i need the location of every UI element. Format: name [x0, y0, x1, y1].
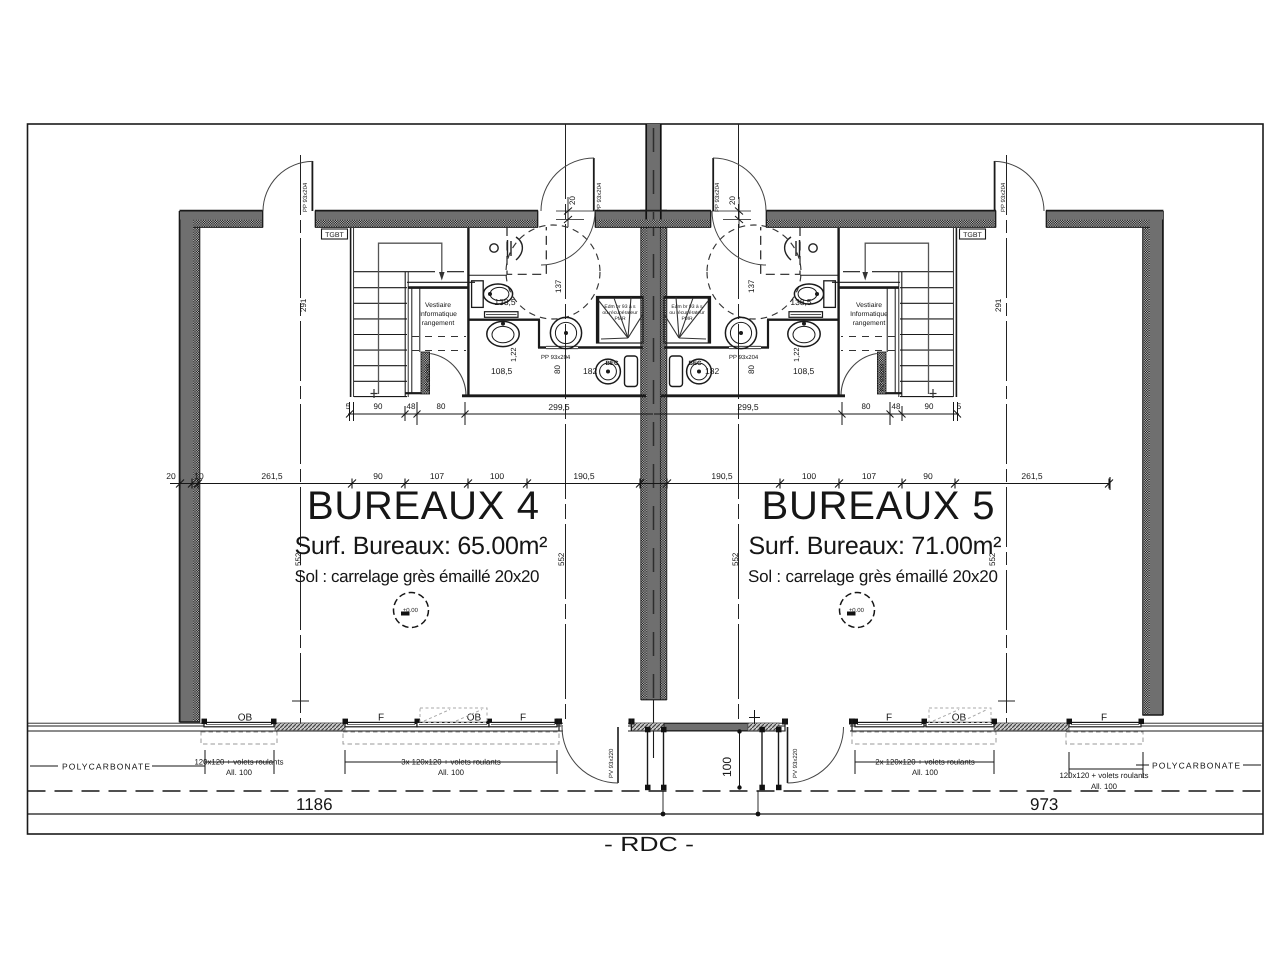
- svg-text:138,5: 138,5: [790, 297, 812, 307]
- svg-text:80: 80: [862, 402, 871, 411]
- svg-text:90: 90: [373, 471, 383, 481]
- svg-text:Sol : carrelage grès émaillé 2: Sol : carrelage grès émaillé 20x20: [295, 567, 540, 586]
- svg-text:1,22: 1,22: [509, 347, 518, 362]
- svg-text:BUREAUX 5: BUREAUX 5: [762, 484, 995, 528]
- svg-text:182: 182: [705, 366, 719, 376]
- svg-text:- RDC -: - RDC -: [604, 833, 694, 856]
- svg-text:Surf. Bureaux: 65.00m²: Surf. Bureaux: 65.00m²: [295, 532, 548, 560]
- svg-text:20: 20: [728, 196, 737, 205]
- svg-text:F: F: [1101, 713, 1107, 724]
- svg-text:107: 107: [430, 471, 444, 481]
- svg-text:OB: OB: [238, 713, 253, 724]
- svg-text:90: 90: [374, 402, 383, 411]
- svg-text:10: 10: [194, 471, 204, 481]
- svg-text:48: 48: [407, 402, 416, 411]
- svg-text:All. 100: All. 100: [912, 768, 939, 777]
- svg-text:rangement: rangement: [422, 320, 455, 327]
- svg-text:299,5: 299,5: [548, 402, 570, 412]
- svg-text:All. 100: All. 100: [438, 768, 465, 777]
- svg-text:108,5: 108,5: [793, 366, 815, 376]
- svg-text:Informatique: Informatique: [419, 311, 457, 318]
- svg-text:80: 80: [437, 402, 446, 411]
- svg-text:20: 20: [166, 471, 176, 481]
- svg-text:552: 552: [294, 552, 303, 566]
- svg-text:107: 107: [862, 471, 876, 481]
- svg-text:190,5: 190,5: [573, 471, 595, 481]
- svg-text:BUREAUX 4: BUREAUX 4: [307, 484, 539, 528]
- svg-text:PP 93x204: PP 93x204: [729, 354, 759, 361]
- svg-text:120x120 + volets roulants: 120x120 + volets roulants: [1059, 771, 1148, 780]
- svg-text:rangement: rangement: [853, 320, 886, 327]
- svg-text:BEC: BEC: [688, 360, 702, 367]
- svg-text:All. 100: All. 100: [226, 768, 253, 777]
- svg-text:PMR: PMR: [681, 316, 693, 322]
- svg-text:190,5: 190,5: [711, 471, 733, 481]
- svg-text:PC 93x204: PC 93x204: [426, 364, 432, 391]
- svg-text:PP 93x204: PP 93x204: [714, 182, 721, 212]
- svg-text:PMR: PMR: [614, 316, 626, 322]
- svg-text:552: 552: [557, 552, 566, 566]
- svg-text:PP 93x204: PP 93x204: [302, 182, 309, 212]
- svg-text:5: 5: [957, 402, 962, 411]
- svg-text:100: 100: [720, 757, 734, 777]
- svg-text:90: 90: [925, 402, 934, 411]
- svg-text:POLYCARBONATE: POLYCARBONATE: [1152, 761, 1240, 771]
- svg-text:80: 80: [747, 365, 756, 374]
- svg-text:Informatique: Informatique: [850, 311, 888, 318]
- svg-text:137: 137: [554, 279, 563, 293]
- svg-text:PV 93x220: PV 93x220: [792, 748, 799, 778]
- svg-text:80: 80: [553, 365, 562, 374]
- svg-text:Vestiaire: Vestiaire: [425, 302, 451, 309]
- svg-text:261,5: 261,5: [1021, 471, 1043, 481]
- svg-text:±0.00: ±0.00: [403, 607, 419, 614]
- svg-text:90: 90: [923, 471, 933, 481]
- svg-text:100: 100: [490, 471, 504, 481]
- svg-text:TGBT: TGBT: [325, 232, 344, 239]
- svg-text:All. 100: All. 100: [1091, 782, 1118, 791]
- svg-text:108,5: 108,5: [491, 366, 513, 376]
- svg-text:Sol : carrelage grès émaillé 2: Sol : carrelage grès émaillé 20x20: [748, 567, 998, 586]
- svg-text:OB: OB: [467, 713, 482, 724]
- svg-text:±0.00: ±0.00: [849, 607, 865, 614]
- svg-text:1,22: 1,22: [792, 347, 801, 362]
- svg-text:2x 120x120 + volets roulants: 2x 120x120 + volets roulants: [875, 758, 975, 767]
- svg-text:PP 93x204: PP 93x204: [541, 354, 571, 361]
- svg-text:TGBT: TGBT: [963, 232, 982, 239]
- svg-text:973: 973: [1030, 795, 1058, 814]
- svg-text:F: F: [520, 713, 526, 724]
- svg-text:120x120 + volets roulants: 120x120 + volets roulants: [194, 758, 283, 767]
- svg-text:PV 93x220: PV 93x220: [608, 748, 615, 778]
- svg-text:291: 291: [299, 298, 308, 312]
- svg-text:138,5: 138,5: [494, 297, 516, 307]
- svg-text:PC 93x204: PC 93x204: [880, 364, 886, 391]
- svg-text:OB: OB: [952, 713, 967, 724]
- svg-text:1186: 1186: [296, 795, 333, 814]
- svg-text:BEC: BEC: [605, 360, 619, 367]
- svg-text:20: 20: [568, 196, 577, 205]
- svg-text:PP 93x204: PP 93x204: [596, 182, 603, 212]
- svg-text:F: F: [886, 713, 892, 724]
- svg-text:48: 48: [892, 402, 901, 411]
- svg-text:291: 291: [994, 298, 1003, 312]
- svg-text:100: 100: [802, 471, 816, 481]
- svg-text:POLYCARBONATE: POLYCARBONATE: [62, 762, 150, 772]
- svg-text:552: 552: [731, 552, 740, 566]
- svg-text:137: 137: [747, 279, 756, 293]
- svg-text:299,5: 299,5: [737, 402, 759, 412]
- svg-text:261,5: 261,5: [261, 471, 283, 481]
- svg-text:552: 552: [988, 552, 997, 566]
- svg-text:Surf. Bureaux: 71.00m²: Surf. Bureaux: 71.00m²: [749, 532, 1002, 560]
- svg-text:F: F: [378, 713, 384, 724]
- svg-text:PP 93x204: PP 93x204: [1000, 182, 1007, 212]
- svg-text:5: 5: [346, 402, 351, 411]
- svg-text:182: 182: [583, 366, 597, 376]
- svg-text:3x 120x120 + volets roulants: 3x 120x120 + volets roulants: [401, 758, 501, 767]
- svg-text:Vestiaire: Vestiaire: [856, 302, 882, 309]
